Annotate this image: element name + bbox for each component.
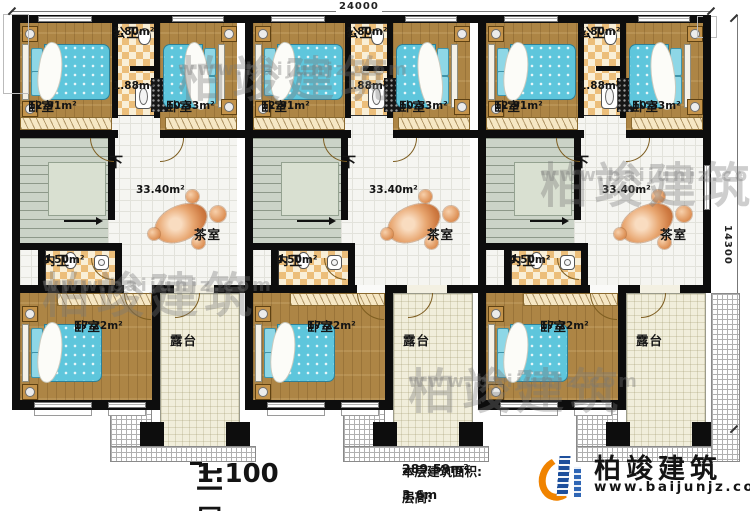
nightstand [22, 384, 38, 400]
window [34, 402, 92, 408]
nightstand [454, 99, 470, 115]
room-area: 33.40m² [602, 184, 651, 196]
tea-cushion [381, 228, 393, 240]
wall [363, 66, 389, 71]
logo-building-small [572, 465, 583, 499]
room-area: 1.80m² [579, 26, 620, 38]
stair-direction-arrow [297, 220, 329, 222]
room-area: 12.91m² [494, 100, 543, 112]
unit: 卧室 12.91m² 卧室 10.53m² 公卫 1.80m² 1.88m² 3… [478, 0, 711, 511]
nightstand [255, 26, 271, 42]
room-area: 12.91m² [28, 100, 77, 112]
window-sill [500, 410, 558, 416]
wall [130, 66, 156, 71]
door-opening [124, 285, 152, 293]
wall [253, 243, 348, 250]
wall [12, 130, 118, 138]
bed-headboard [255, 44, 262, 100]
title-block: 二层平面图 1:100 本层建筑面积: 289.59m² 层高: 3.6m 柏竣… [0, 445, 750, 511]
dimension-top-label: 24000 [336, 1, 382, 12]
tea-cushion [652, 190, 665, 203]
bed-headboard [22, 324, 29, 382]
tea-cushion [419, 190, 432, 203]
window [638, 16, 690, 22]
bed-headboard [255, 324, 262, 382]
room-area: 4.50m² [276, 254, 317, 266]
stairs [253, 138, 341, 243]
window [574, 402, 612, 408]
bed [488, 44, 576, 100]
wardrobe [486, 117, 578, 130]
wall [160, 130, 245, 138]
room-area: 10.53m² [632, 100, 681, 112]
tea-cushion [676, 206, 692, 222]
window [504, 16, 558, 22]
window-sill [341, 410, 379, 416]
room-name: 茶室 [427, 228, 454, 242]
stair-landing [48, 162, 106, 216]
tea-cushion [614, 228, 626, 240]
window [500, 402, 558, 408]
room-area: 1.80m² [113, 26, 154, 38]
stair-landing [514, 162, 572, 216]
window-sill [34, 410, 92, 416]
wall [703, 15, 711, 293]
nightstand [22, 306, 38, 322]
room-name: 露台 [170, 334, 197, 348]
window [405, 16, 457, 22]
plan-title-group: 二层平面图 1:100 [190, 459, 202, 465]
window [267, 402, 325, 408]
brand-url: www.baijunjz.com [594, 479, 750, 495]
wall [478, 15, 486, 403]
wall [393, 130, 478, 138]
floor-height-value: 3.6m [402, 487, 437, 502]
wardrobe [398, 117, 470, 130]
room-name: 露台 [636, 334, 663, 348]
wall [596, 66, 622, 71]
nightstand [488, 384, 504, 400]
window [271, 16, 325, 22]
room-area: 1.88m² [579, 80, 620, 92]
unit: 卧室 12.91m² 卧室 10.53m² 公卫 1.80m² 1.88m² 3… [12, 0, 245, 511]
floor-plan-canvas: 卧室 12.91m² 卧室 10.53m² 公卫 1.80m² 1.88m² 3… [0, 0, 750, 511]
room-area: 17.22m² [540, 320, 589, 332]
room-area: 10.53m² [399, 100, 448, 112]
door-opening [407, 285, 447, 293]
bed [22, 44, 110, 100]
wardrobe [20, 117, 112, 130]
window [704, 165, 710, 210]
room-area: 33.40m² [136, 184, 185, 196]
room-area: 1.88m² [113, 80, 154, 92]
door-opening [640, 285, 680, 293]
wall [626, 130, 711, 138]
terrace-column [373, 422, 397, 446]
room-area: 4.50m² [43, 254, 84, 266]
nightstand [488, 26, 504, 42]
wall [245, 130, 351, 138]
wall [486, 243, 581, 250]
stair-down-label: 下 [575, 152, 589, 172]
plan-scale: 1:100 [196, 459, 279, 489]
room-name: 茶室 [660, 228, 687, 242]
room-area: 4.50m² [509, 254, 550, 266]
terrace-column [140, 422, 164, 446]
wardrobe [253, 117, 345, 130]
unit: 卧室 12.91m² 卧室 10.53m² 公卫 1.80m² 1.88m² 3… [245, 0, 478, 511]
units-container: 卧室 12.91m² 卧室 10.53m² 公卫 1.80m² 1.88m² 3… [0, 0, 750, 511]
window [108, 402, 146, 408]
room-name: 茶室 [194, 228, 221, 242]
wall [20, 243, 115, 250]
tea-cushion [186, 190, 199, 203]
door-opening [357, 285, 385, 293]
room-area: 1.88m² [346, 80, 387, 92]
door-opening [174, 285, 214, 293]
window [172, 16, 224, 22]
floor-area-value: 289.59m² [402, 461, 469, 476]
exterior-outline [3, 14, 29, 94]
dimension-right-label: 14300 [722, 222, 733, 268]
tea-cushion [148, 228, 160, 240]
window [341, 402, 379, 408]
bed-headboard [488, 324, 495, 382]
tea-cushion [443, 206, 459, 222]
stair-direction-arrow [530, 220, 562, 222]
stair-down-label: 下 [109, 152, 123, 172]
wall [245, 15, 253, 403]
tea-table-icon [150, 190, 228, 252]
window [38, 16, 92, 22]
room-name: 露台 [403, 334, 430, 348]
room-area: 17.22m² [74, 320, 123, 332]
wall [618, 293, 626, 403]
nightstand [454, 26, 470, 42]
nightstand [255, 384, 271, 400]
stairs [486, 138, 574, 243]
stair-landing [281, 162, 339, 216]
window-sill [267, 410, 325, 416]
bed [255, 44, 343, 100]
logo-building [553, 453, 573, 499]
tea-cushion [210, 206, 226, 222]
tea-table-icon [616, 190, 694, 252]
bed-headboard [488, 44, 495, 100]
nightstand [221, 99, 237, 115]
stair-direction-arrow [64, 220, 96, 222]
room-area: 12.91m² [261, 100, 310, 112]
terrace-column [606, 422, 630, 446]
brand-logo-icon [541, 449, 589, 505]
room-area: 17.22m² [307, 320, 356, 332]
wall [152, 293, 160, 403]
window-sill [108, 410, 146, 416]
room-area: 1.80m² [346, 26, 387, 38]
wardrobe [165, 117, 237, 130]
door-opening [590, 285, 618, 293]
stair-down-label: 下 [342, 152, 356, 172]
window-sill [574, 410, 612, 416]
nightstand [221, 26, 237, 42]
nightstand [687, 99, 703, 115]
wall [478, 130, 584, 138]
terrace-railing [711, 293, 740, 462]
room-area: 10.53m² [166, 100, 215, 112]
nightstand [255, 306, 271, 322]
tea-table-icon [383, 190, 461, 252]
wall [385, 293, 393, 403]
wardrobe [631, 117, 703, 130]
stairs [20, 138, 108, 243]
room-area: 33.40m² [369, 184, 418, 196]
nightstand [488, 306, 504, 322]
